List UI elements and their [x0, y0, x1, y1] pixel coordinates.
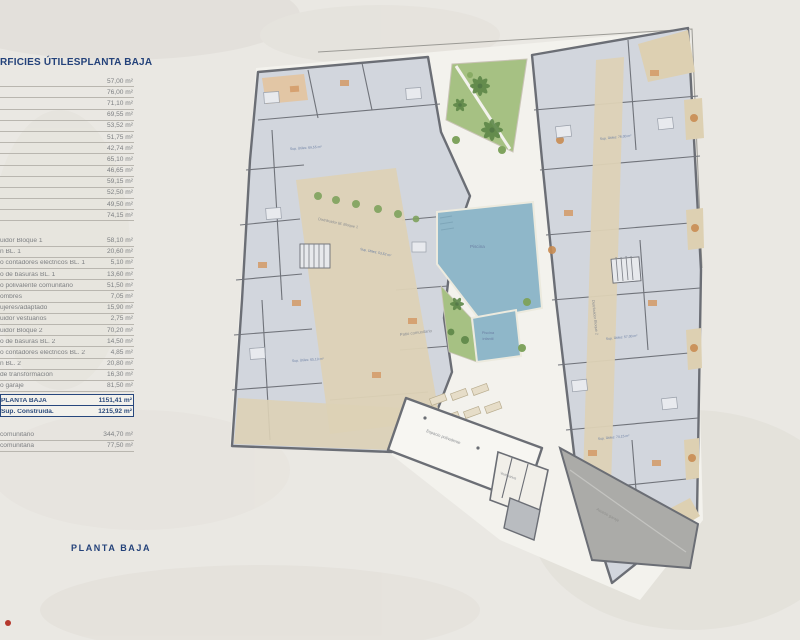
row-value: 1215,92 m² — [98, 409, 132, 416]
row-value: 14,50 m² — [107, 339, 133, 346]
table-row: o contadores eléctricos BL. 2 4,85 m² — [0, 347, 134, 358]
row-value: 5,10 m² — [111, 260, 133, 267]
row-value: 58,10 m² — [107, 238, 133, 245]
table-header-right: PLANTA BAJA — [81, 57, 153, 68]
row-value: 1151,41 m² — [99, 398, 132, 405]
stairs-block-2 — [611, 256, 641, 283]
table-row: o polivalente comunitario 51,50 m² — [0, 280, 134, 291]
kids-pool-shape — [472, 310, 521, 362]
table-row: 42,74 m² — [0, 143, 134, 154]
table-group-exterior: comunitario 344,70 m² comunitaria 77,50 … — [0, 429, 134, 451]
row-label: ujeres/adaptado — [0, 305, 47, 312]
stairs-block-1 — [300, 244, 330, 268]
row-value: 65,10 m² — [107, 157, 133, 164]
row-value: 77,50 m² — [107, 443, 133, 450]
table-row: 46,65 m² — [0, 166, 134, 177]
row-value: 15,90 m² — [107, 305, 133, 312]
row-value: 4,85 m² — [111, 350, 133, 357]
table-row: uidor vestuarios 2,75 m² — [0, 314, 134, 325]
row-value: 57,00 m² — [107, 79, 133, 86]
table-row: 76,00 m² — [0, 87, 134, 98]
row-value: 16,30 m² — [107, 372, 133, 379]
summary-row: PLANTA BAJA 1151,41 m² — [1, 395, 133, 406]
table-row: 51,75 m² — [0, 132, 134, 143]
row-label: n BL. 2 — [0, 361, 21, 368]
row-label: uidor vestuarios — [0, 316, 47, 323]
logo-dot — [5, 620, 11, 626]
kids-pool-label-1: Piscina — [482, 331, 495, 335]
row-value: 74,15 m² — [107, 213, 133, 220]
row-value: 51,50 m² — [107, 283, 133, 290]
row-label: ombres — [0, 294, 22, 301]
building-block-1 — [232, 57, 470, 452]
row-label: o de basuras BL. 1 — [0, 272, 55, 279]
table-row: comunitaria 77,50 m² — [0, 441, 134, 452]
row-label: comunitario — [0, 432, 34, 439]
row-label: Sup. Construida. — [1, 409, 54, 416]
row-label: PLANTA BAJA — [1, 398, 47, 405]
row-value: 71,10 m² — [107, 101, 133, 108]
row-value: 70,20 m² — [107, 328, 133, 335]
row-value: 51,75 m² — [107, 135, 133, 142]
table-row: 74,15 m² — [0, 210, 134, 221]
row-label: o garaje — [0, 383, 24, 390]
row-label: o de basuras BL. 2 — [0, 339, 55, 346]
garden-area — [446, 59, 527, 154]
row-value: 52,50 m² — [107, 190, 133, 197]
row-value: 59,15 m² — [107, 179, 133, 186]
table-row: 49,50 m² — [0, 199, 134, 210]
kids-pool-label-2: infantil — [483, 337, 494, 341]
table-row: 59,15 m² — [0, 177, 134, 188]
table-row: o de basuras BL. 2 14,50 m² — [0, 336, 134, 347]
table-group-common: uidor Bloque 1 58,10 m² n BL. 1 20,60 m²… — [0, 235, 134, 392]
row-value: 42,74 m² — [107, 146, 133, 153]
table-row: 65,10 m² — [0, 154, 134, 165]
row-value: 20,60 m² — [107, 249, 133, 256]
row-value: 344,70 m² — [103, 432, 133, 439]
table-group-apartments: 57,00 m² 76,00 m² 71,10 m² 69,55 m² 53,5… — [0, 76, 134, 221]
row-value: 76,00 m² — [107, 90, 133, 97]
table-row: o contadores eléctricos BL. 1 5,10 m² — [0, 258, 134, 269]
plan-title: PLANTA BAJA — [71, 543, 151, 553]
row-label: o contadores eléctricos BL. 1 — [0, 260, 85, 267]
row-label: o contadores eléctricos BL. 2 — [0, 350, 85, 357]
table-row: comunitario 344,70 m² — [0, 429, 134, 440]
table-row: uidor Bloque 2 70,20 m² — [0, 325, 134, 336]
table-row: n BL. 1 20,60 m² — [0, 247, 134, 258]
table-row: 69,55 m² — [0, 110, 134, 121]
row-label: comunitaria — [0, 443, 34, 450]
table-row: 71,10 m² — [0, 98, 134, 109]
table-header: RFICIES ÚTILES PLANTA BAJA — [0, 57, 134, 68]
table-header-left: RFICIES ÚTILES — [0, 57, 81, 68]
table-row: uidor Bloque 1 58,10 m² — [0, 235, 134, 246]
table-row: o garaje 81,50 m² — [0, 381, 134, 392]
row-value: 7,05 m² — [111, 294, 133, 301]
table-row: n BL. 2 20,80 m² — [0, 359, 134, 370]
row-value: 53,52 m² — [107, 123, 133, 130]
row-label: uidor Bloque 2 — [0, 328, 43, 335]
table-summary-box: PLANTA BAJA 1151,41 m² Sup. Construida. … — [0, 394, 134, 417]
row-label: uidor Bloque 1 — [0, 238, 43, 245]
table-row: de transformación 16,30 m² — [0, 370, 134, 381]
summary-row: Sup. Construida. 1215,92 m² — [1, 406, 133, 416]
row-value: 81,50 m² — [107, 383, 133, 390]
row-label: o polivalente comunitario — [0, 283, 73, 290]
table-row: 57,00 m² — [0, 76, 134, 87]
table-row: ombres 7,05 m² — [0, 291, 134, 302]
table-row: 52,50 m² — [0, 188, 134, 199]
row-value: 49,50 m² — [107, 202, 133, 209]
surface-table: RFICIES ÚTILES PLANTA BAJA 57,00 m² 76,0… — [0, 57, 134, 452]
row-value: 46,65 m² — [107, 168, 133, 175]
row-value: 13,60 m² — [107, 272, 133, 279]
row-value: 20,80 m² — [107, 361, 133, 368]
table-row: 53,52 m² — [0, 121, 134, 132]
table-row: o de basuras BL. 1 13,60 m² — [0, 269, 134, 280]
row-label: n BL. 1 — [0, 249, 21, 256]
row-value: 2,75 m² — [111, 316, 133, 323]
row-value: 69,55 m² — [107, 112, 133, 119]
pool-label: Piscina — [470, 244, 485, 249]
table-row: ujeres/adaptado 15,90 m² — [0, 303, 134, 314]
row-label: de transformación — [0, 372, 53, 379]
